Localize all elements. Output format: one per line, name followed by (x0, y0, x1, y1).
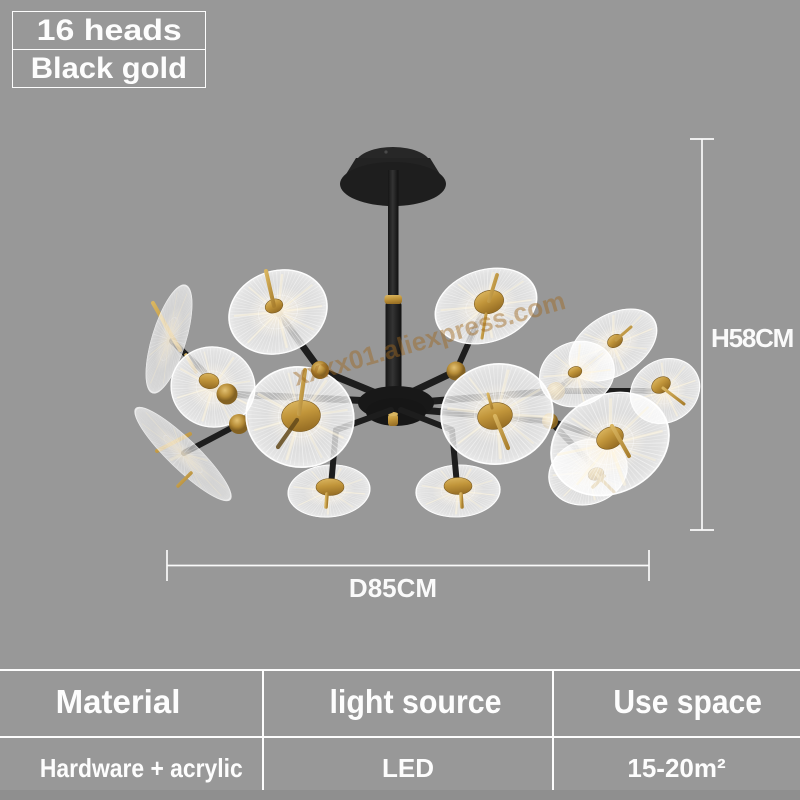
svg-text:D85CM: D85CM (349, 573, 437, 603)
svg-text:H58CM: H58CM (711, 323, 793, 353)
